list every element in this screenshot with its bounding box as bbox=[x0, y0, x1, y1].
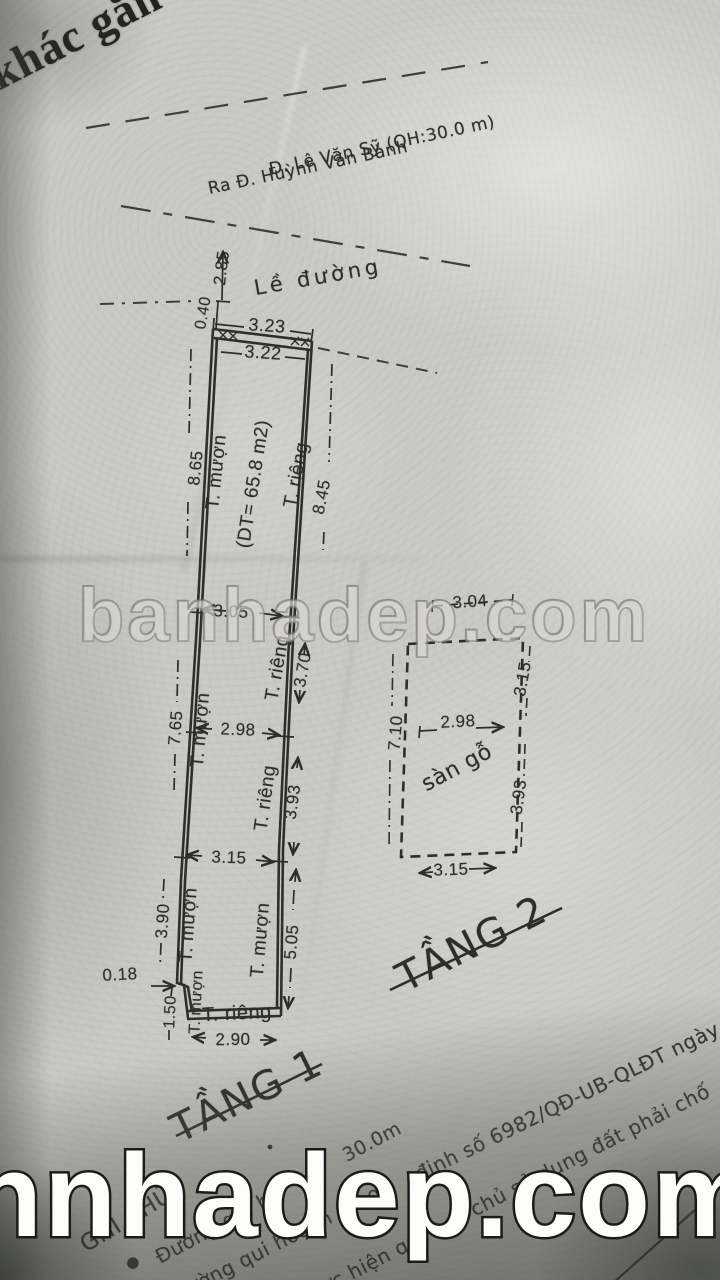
floor1-wall-muon-mid: T. mượn bbox=[187, 692, 215, 769]
scanned-floor-plan-photo: khác gắn Đ. Lê Văn Sỹ (QH:30.0 m) Ra Đ. … bbox=[0, 0, 720, 1280]
floor1-dim-bottom: 2.90 bbox=[215, 1030, 250, 1051]
floor1-dim-left-2: 7.65 bbox=[165, 710, 188, 747]
floor2-dim-right-lower: 3.93 bbox=[507, 778, 532, 816]
floor1-dim-left-3: 3.90 bbox=[152, 903, 174, 939]
floor1-area-label: (DT= 65.8 m2) bbox=[233, 418, 275, 549]
watermark-bottom: nnhadep.com bbox=[0, 1128, 720, 1264]
corner-note-text: khác gắn bbox=[0, 0, 170, 100]
floor2-dim-left: 7.10 bbox=[385, 715, 408, 752]
floor1-dim-right-1: 8.45 bbox=[309, 478, 335, 516]
sidewalk-label: Lề đường bbox=[252, 254, 384, 300]
dim-sidewalk: 2.85 bbox=[210, 249, 234, 286]
floor2-dim-inner: 2.98 bbox=[440, 711, 476, 733]
floor1-dim-left-4: 1.50 bbox=[161, 995, 181, 1029]
floor1-wall-muon-lower-right: T. mượn bbox=[247, 902, 275, 979]
street-lines bbox=[86, 62, 488, 373]
floor1-wall-muon-top: T. mượn bbox=[202, 433, 232, 510]
floor2-dim-bottom: 3.15 bbox=[433, 859, 469, 880]
floor1-wall-rieng-top: T. riêng bbox=[280, 440, 314, 509]
floor1-dim-top-inner: 3.22 bbox=[244, 341, 282, 365]
floor1-wall-rieng-mid-lower: T. riêng bbox=[250, 764, 281, 833]
dim-setback: 0.40 bbox=[192, 295, 215, 331]
street-alley-label: Ra Đ. Huỳnh Văn Bành bbox=[206, 137, 409, 199]
floor1-dim-right-3: 3.93 bbox=[281, 783, 306, 821]
floor1-dim-right-4: 5.05 bbox=[281, 924, 304, 961]
floor2-room-label: sàn gỗ bbox=[417, 739, 496, 797]
floor1-wall-rieng-bottom: T. riêng bbox=[202, 1001, 273, 1028]
watermark-center: banhadep.com bbox=[78, 572, 650, 659]
floor2-title: TẦNG 2 bbox=[389, 887, 555, 1002]
floor1-dim-inner-3: 3.15 bbox=[211, 847, 247, 868]
floor2-dim-right-upper: 3.15 bbox=[510, 660, 536, 698]
floor1-wall-muon-lower-left: T. mượn bbox=[175, 887, 202, 963]
paper-crease bbox=[0, 556, 420, 562]
floor1-dim-top-outer: 3.23 bbox=[248, 314, 286, 338]
floor1-dim-jog: 0.18 bbox=[102, 964, 138, 986]
floor1-dim-inner-2: 2.98 bbox=[220, 719, 256, 740]
